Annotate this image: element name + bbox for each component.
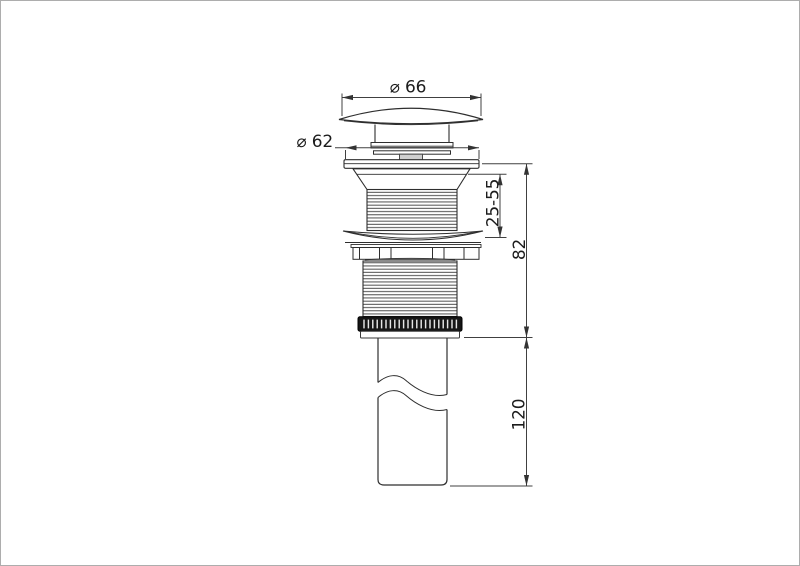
arrowhead (524, 164, 529, 175)
thread-clamp-range-label: 25-55 (484, 179, 504, 227)
arrowhead (524, 327, 529, 338)
arrowhead (342, 95, 353, 100)
slotted-lock-ring (351, 245, 481, 260)
arrowhead (468, 145, 479, 150)
break-line-upper (378, 376, 447, 396)
gasket-cone (353, 169, 470, 190)
arrowhead (470, 95, 481, 100)
tailpipe (378, 338, 447, 485)
lower-thread-section (363, 258, 457, 316)
cap-neck (371, 125, 453, 161)
arrowhead (346, 145, 357, 150)
break-line-lower (378, 391, 447, 411)
dim-thread-clamp-range: 25-55 (468, 174, 507, 237)
upper-thread-section (367, 190, 457, 231)
lock-nut (358, 317, 462, 338)
tailpipe-length-label: 120 (510, 399, 530, 431)
arrowhead (524, 475, 529, 486)
drawing-canvas: ⌀ 66 ⌀ 62 25-55 82 120 (0, 0, 800, 566)
flange-diameter-label: ⌀ 62 (297, 132, 333, 152)
push-cap (339, 108, 483, 124)
seal-washer (343, 231, 483, 243)
technical-drawing: ⌀ 66 ⌀ 62 25-55 82 120 (1, 1, 800, 566)
body-height-label: 82 (510, 239, 530, 260)
top-flange (344, 160, 479, 169)
dim-tailpipe-length: 120 (450, 338, 533, 487)
cap-diameter-label: ⌀ 66 (390, 78, 426, 98)
arrowhead (524, 338, 529, 349)
